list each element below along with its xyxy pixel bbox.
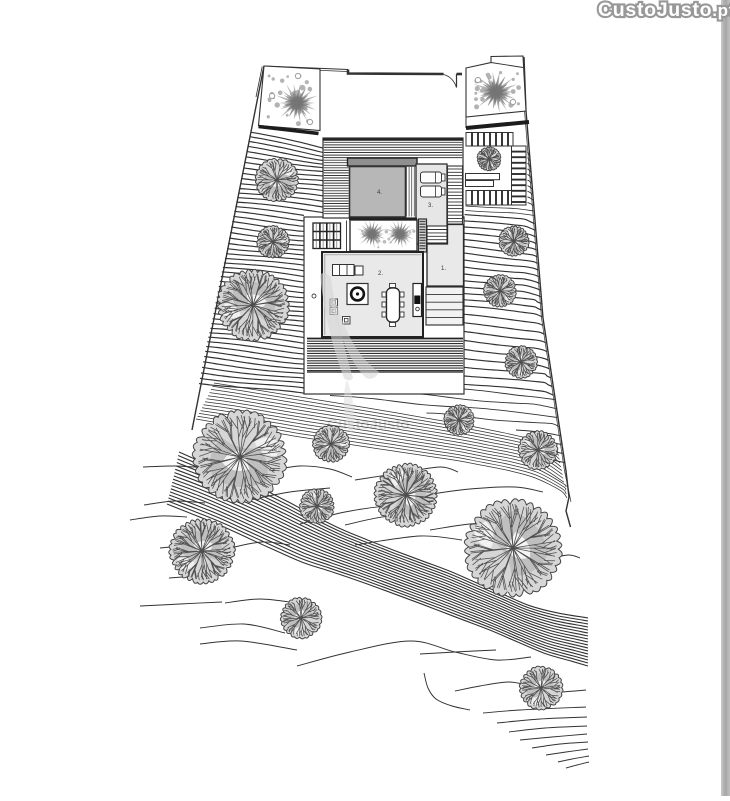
svg-text:4.: 4. (377, 190, 382, 196)
svg-text:3.: 3. (428, 203, 433, 209)
svg-text:CustoJusto.pt: CustoJusto.pt (598, 0, 730, 21)
svg-text:1.: 1. (441, 266, 446, 272)
svg-text:2.: 2. (378, 271, 383, 277)
